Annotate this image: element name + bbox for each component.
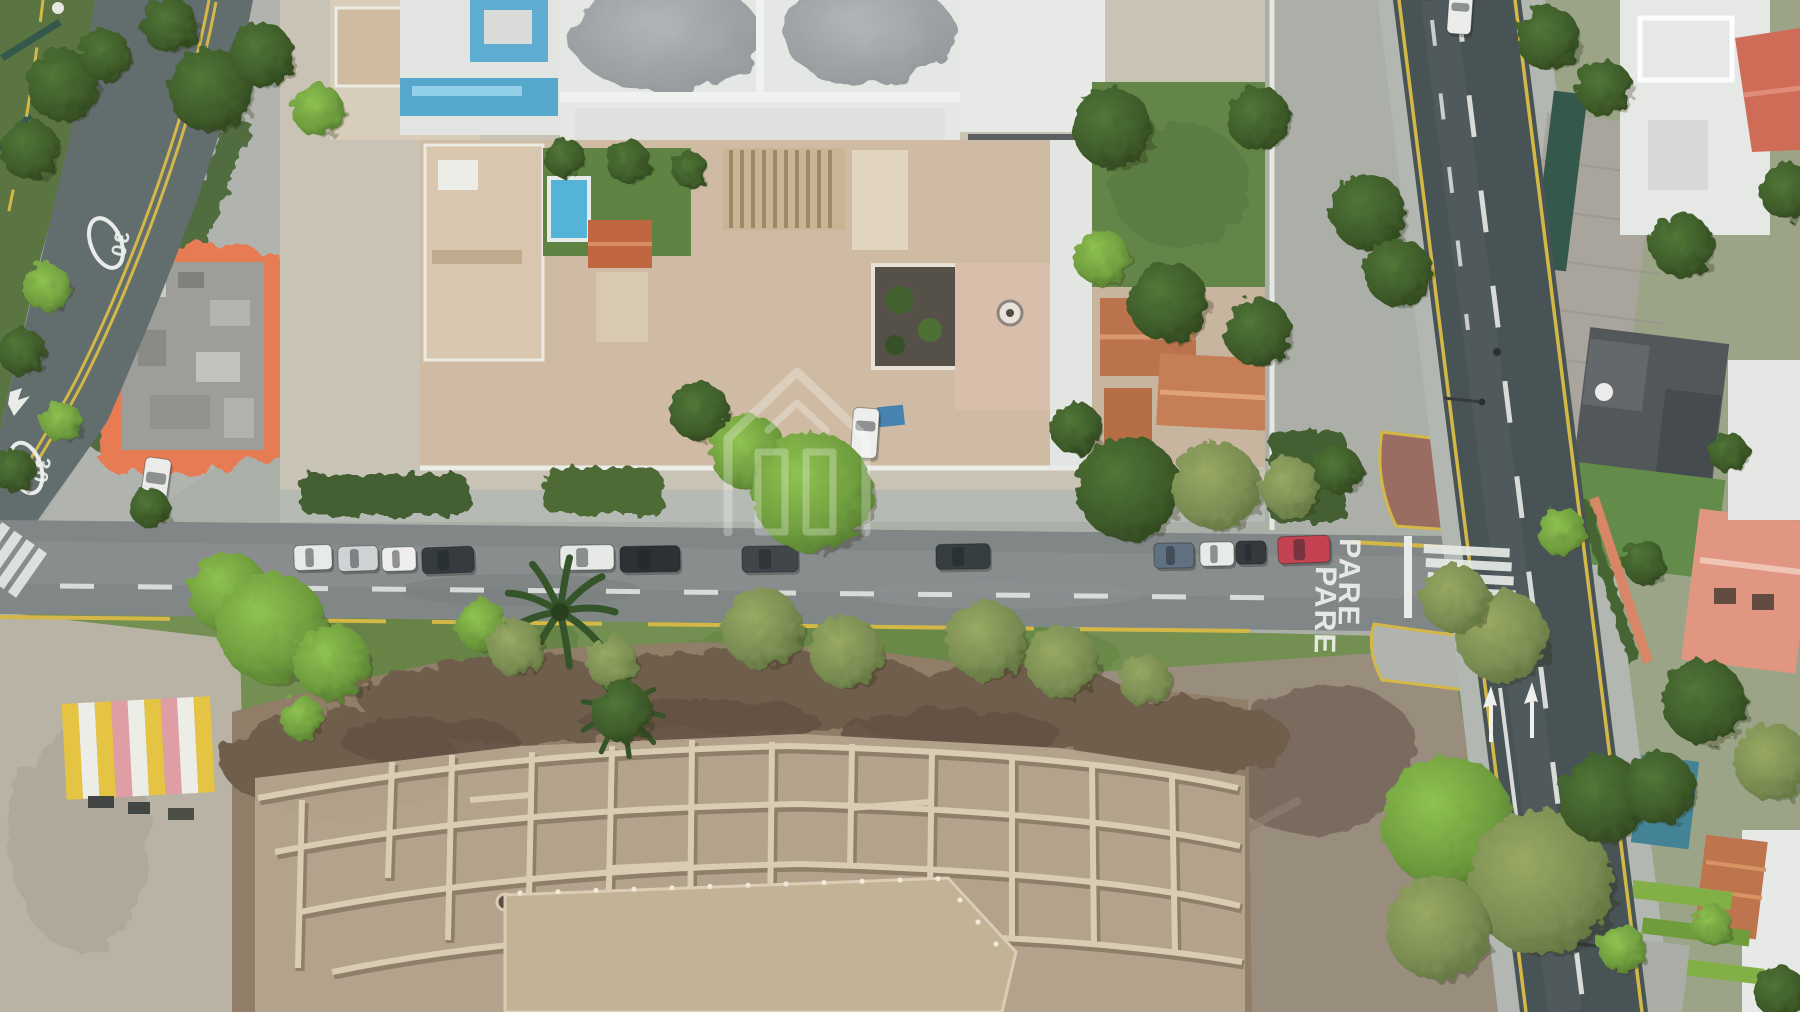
aerial-photo-stage: 30 30 PARE PARE: [0, 0, 1800, 1012]
haze-overlay: [0, 0, 1800, 1012]
aerial-photo: 30 30 PARE PARE: [0, 0, 1800, 1012]
